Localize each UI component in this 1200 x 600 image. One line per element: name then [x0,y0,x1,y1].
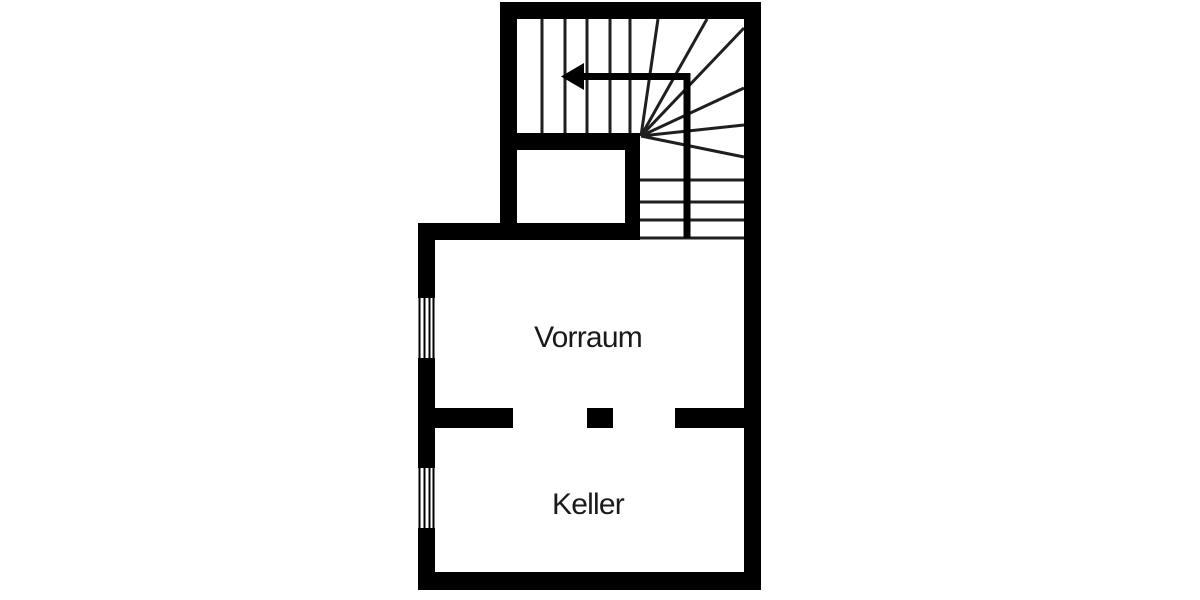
wall-shaft-right [625,150,640,223]
staircase [542,19,744,238]
wall-vorraum-top [418,223,640,240]
wall-staircase-left [500,2,517,240]
wall-shaft-top [517,133,640,150]
room-label-vorraum: Vorraum [534,321,642,354]
wall-staircase-top [500,2,761,19]
floorplan-drawing: Vorraum Keller [0,0,1200,600]
wall-bottom [418,572,761,590]
floorplan-canvas: Vorraum Keller [0,0,1200,600]
wall-right [744,2,761,590]
stairs-lower-flight-treads [640,180,744,238]
window-symbol-lower [417,468,436,528]
wall-divider-left-segment [435,408,513,428]
room-label-keller: Keller [552,488,625,521]
stairs-winder-treads [641,19,744,157]
wall-divider-right-segment [675,408,744,428]
wall-divider-center-pier [587,408,613,428]
wall-left [418,223,435,590]
window-symbol-upper [417,298,436,358]
